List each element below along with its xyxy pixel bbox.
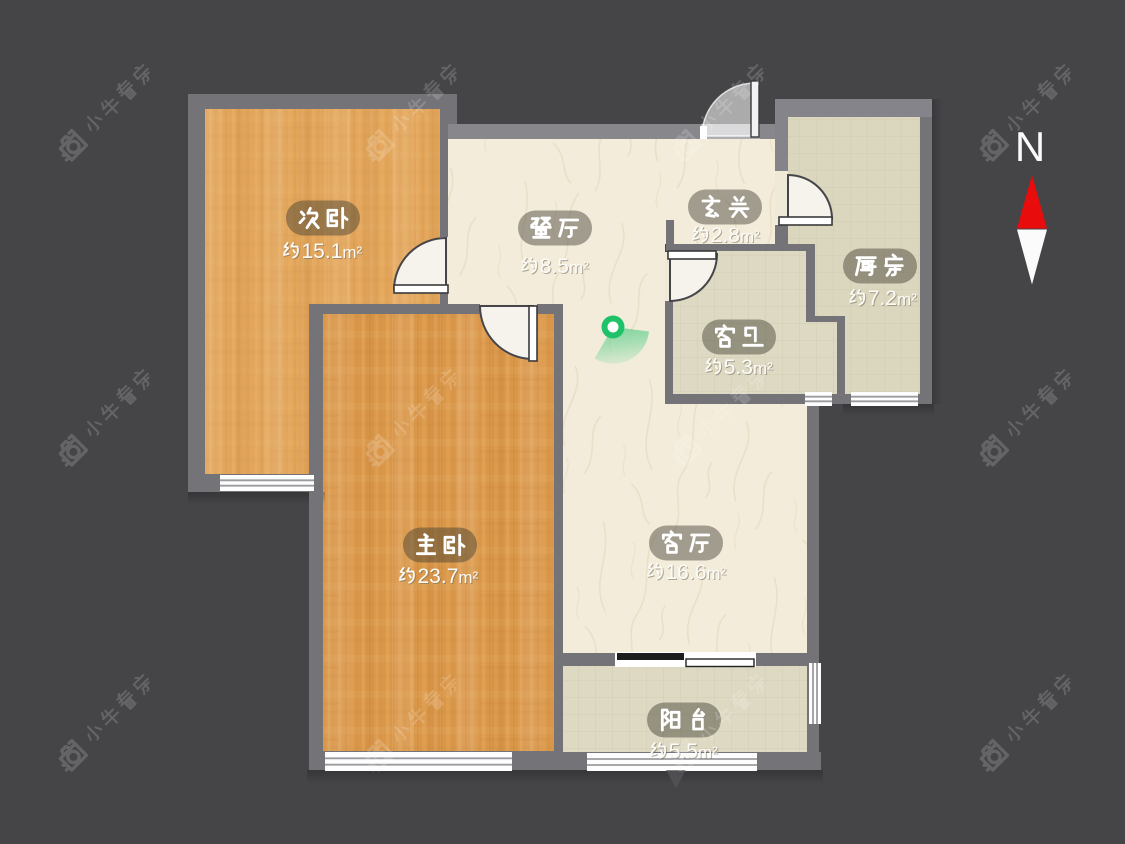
svg-text:5.3m²: 5.3m²	[724, 356, 773, 379]
svg-text:2.8m²: 2.8m²	[711, 224, 760, 247]
svg-text:7.2m²: 7.2m²	[868, 287, 917, 310]
svg-text:23.7m²: 23.7m²	[418, 565, 479, 588]
svg-text:N: N	[1015, 123, 1045, 170]
svg-text:15.1m²: 15.1m²	[302, 240, 363, 263]
svg-text:8.5m²: 8.5m²	[540, 255, 589, 278]
svg-text:16.6m²: 16.6m²	[666, 561, 727, 584]
